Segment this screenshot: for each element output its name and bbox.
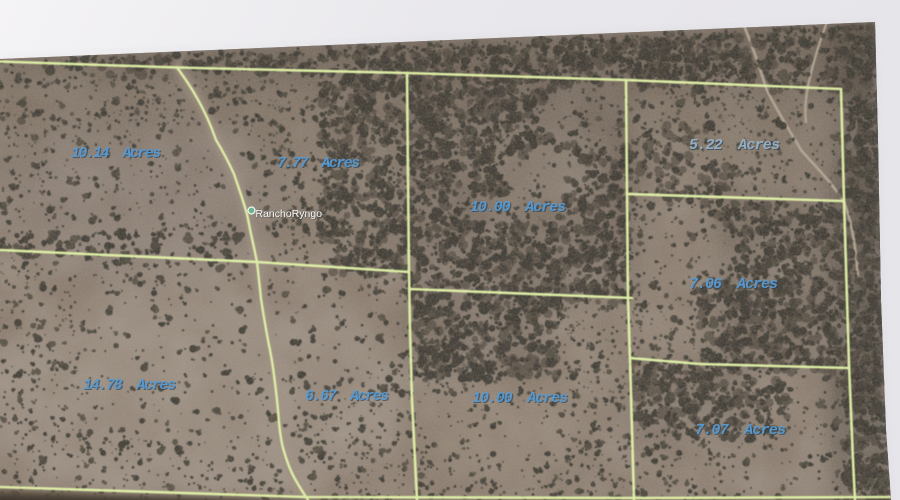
- svg-text:10.00 Acres: 10.00 Acres: [472, 390, 568, 407]
- svg-text:5.22 Acres: 5.22 Acres: [689, 137, 780, 154]
- svg-text:7.06 Acres: 7.06 Acres: [689, 276, 778, 293]
- svg-text:10.00 Acres: 10.00 Acres: [470, 199, 566, 216]
- svg-text:7.07 Acres: 7.07 Acres: [695, 422, 786, 439]
- svg-text:14.78 Acres: 14.78 Acres: [83, 377, 176, 394]
- svg-text:RanchoRyngo: RanchoRyngo: [256, 208, 323, 220]
- svg-text:6.67 Acres: 6.67 Acres: [305, 388, 389, 405]
- svg-text:10.14 Acres: 10.14 Acres: [71, 145, 161, 162]
- svg-text:7.77 Acres: 7.77 Acres: [277, 155, 360, 172]
